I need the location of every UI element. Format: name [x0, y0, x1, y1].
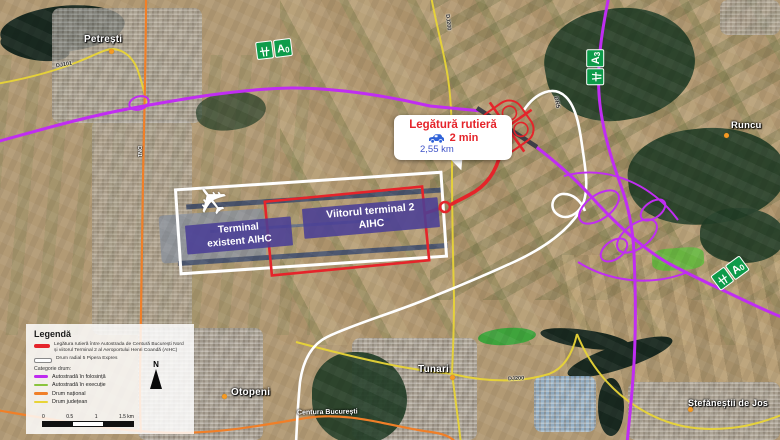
- scale-bar: 0 0.5 1 1.5 km: [42, 414, 134, 427]
- town-dot-otopeni: [222, 394, 227, 399]
- town-label-otopeni: Otopeni: [231, 387, 270, 398]
- town-dot-tunari: [450, 375, 455, 380]
- legend-category-label: Autostradă în folosință: [52, 374, 106, 380]
- town-dot-petresti: [109, 49, 114, 54]
- legend-swatch-red: [34, 344, 50, 348]
- callout-distance: 2,55 km: [420, 144, 506, 155]
- legend-panel: Legendă Legătura rutieră între Autostrad…: [26, 324, 194, 434]
- terminal-existing-line2: existent AIHC: [207, 233, 272, 250]
- legend-swatch-orange: [34, 392, 48, 395]
- sign-a3-number: 3: [594, 52, 602, 56]
- legend-category-motorway-construction: Autostradă în execuție: [34, 382, 186, 388]
- town-label-runcu: Runcu: [731, 120, 762, 131]
- legend-category-motorway-open: Autostradă în folosință: [34, 374, 186, 380]
- legend-item-radial-label: Drum radial 5 Pipera Expres: [56, 356, 117, 363]
- legend-category-label: Drum național: [52, 391, 86, 397]
- town-dot-stefanesti: [688, 407, 693, 412]
- town-dot-runcu: [724, 133, 729, 138]
- town-label-stefanesti: Ștefăneștii de Jos: [688, 398, 768, 408]
- terminal-future-line2: AIHC: [358, 217, 385, 231]
- motorway-icon: [586, 68, 604, 85]
- map-canvas: ✈ Terminal existent AIHC Viitorul termin…: [0, 0, 780, 440]
- legend-item-radial: Drum radial 5 Pipera Expres: [34, 356, 186, 363]
- legend-category-national: Drum național: [34, 391, 186, 397]
- legend-swatch-green: [34, 384, 48, 387]
- north-arrow: N: [150, 360, 162, 389]
- scale-bar-segments: [42, 421, 134, 427]
- north-label: N: [150, 360, 162, 369]
- legend-swatch-yellow: [34, 401, 48, 404]
- legend-category-county: Drum județean: [34, 399, 186, 405]
- callout-title: Legătură rutieră: [400, 119, 506, 131]
- legend-swatch-white: [34, 358, 52, 363]
- legend-swatch-purple: [34, 375, 48, 378]
- sign-a0-number: 0: [285, 46, 290, 54]
- town-label-tunari: Tunari: [418, 364, 449, 375]
- road-tunari-south: [452, 374, 461, 440]
- legend-category-title: Categorie drum:: [34, 366, 186, 372]
- road-stefanesti: [577, 334, 780, 429]
- callout-time: 2 min: [450, 132, 479, 144]
- legend-title: Legendă: [34, 329, 186, 339]
- scale-tick: 0.5: [66, 414, 73, 420]
- sign-a3: A3: [586, 49, 604, 85]
- sign-a3-letter: A: [591, 56, 602, 64]
- scale-tick: 1: [95, 414, 98, 420]
- legend-item-link-line1: Legătura rutieră între Autostrada de Cen…: [54, 342, 184, 347]
- legend-category-label: Drum județean: [52, 399, 87, 405]
- roundabout-red: [440, 202, 450, 212]
- town-label-petresti: Petrești: [84, 34, 122, 45]
- scale-tick: 0: [42, 414, 45, 420]
- scale-tick: 1.5 km: [119, 414, 134, 420]
- north-arrow-icon: [150, 369, 162, 389]
- callout-bubble: Legătură rutieră 2 min 2,55 km: [394, 115, 512, 160]
- legend-category-label: Autostradă în execuție: [52, 382, 106, 388]
- legend-item-link: Legătura rutieră între Autostrada de Cen…: [34, 342, 186, 355]
- road-label-dj200-east: DJ200: [508, 376, 525, 383]
- legend-item-link-line2: și viitorul Terminal 2 al Aeroportului H…: [54, 348, 177, 353]
- motorway-icon: [255, 40, 274, 60]
- road-label-centura: Centura București: [297, 408, 358, 416]
- road-dj200-east: [452, 334, 577, 380]
- road-label-dn1: DN1: [136, 146, 142, 157]
- car-icon: [428, 133, 445, 144]
- road-dj101: [0, 49, 146, 103]
- road-a0-east: [535, 146, 780, 318]
